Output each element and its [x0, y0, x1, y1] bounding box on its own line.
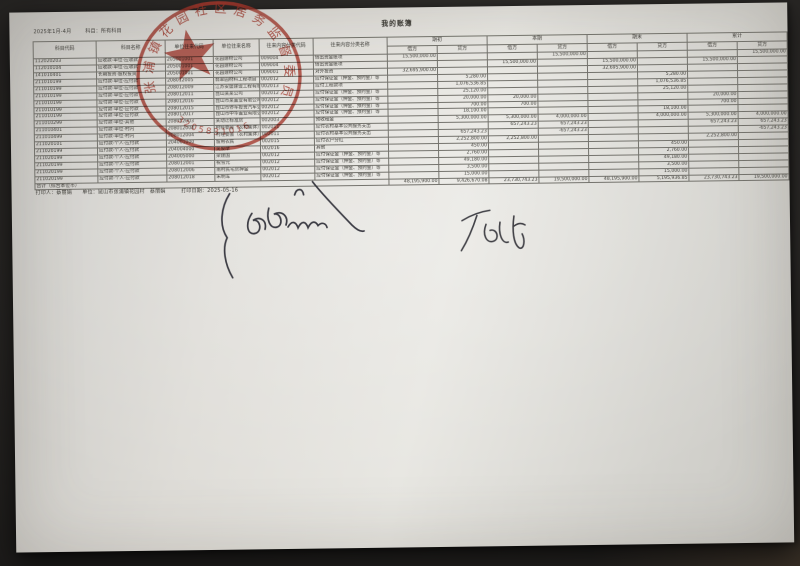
- table-cell: 15,500,000.00: [687, 57, 737, 65]
- table-cell: 32,695,900.00: [587, 65, 637, 73]
- table-cell: 32,695,900.00: [387, 68, 437, 76]
- table-cell: 25,120.00: [438, 88, 488, 96]
- table-cell: 657,243.23: [738, 118, 788, 126]
- table-cell: 657,243.23: [438, 129, 488, 137]
- report-period: 2025年1月-4月: [33, 29, 71, 35]
- table-cell: 2,252,800.00: [488, 135, 538, 143]
- table-cell: -657,243.23: [738, 125, 788, 133]
- table-cell: 20,000.00: [488, 94, 538, 102]
- stamp-serial: 3205831016: [175, 114, 253, 138]
- table-cell: 5,300,000.00: [688, 112, 738, 120]
- table-cell: 18,100.00: [638, 106, 688, 114]
- table-cell: 657,243.23: [688, 119, 738, 127]
- table-cell: 2,252,800.00: [688, 133, 738, 141]
- signature-2: [450, 204, 546, 265]
- table-cell: 4,000,000.00: [638, 113, 688, 121]
- table-cell: 15,000.00: [639, 168, 689, 176]
- table-cell: 15,500,000.00: [537, 52, 587, 60]
- table-cell: 657,243.23: [488, 121, 538, 129]
- table-cell: 4,000,000.00: [538, 114, 588, 122]
- red-official-stamp: 张浦镇花园社区居务监督委员会 3205831016: [115, 0, 317, 167]
- table-cell: 15,500,000.00: [587, 58, 637, 66]
- table-cell: 1,076,536.85: [638, 78, 688, 86]
- table-cell: 5,300,000.00: [488, 115, 538, 123]
- table-cell: 20,000.00: [688, 91, 738, 99]
- print-info-line: 打印人：蔡丽娟 单位：昆山市张浦镇花园村 蔡丽娟 打印日期：2025-05-16: [36, 187, 239, 197]
- table-cell: 4,000,000.00: [738, 111, 788, 119]
- table-cell: 1,076,536.85: [438, 81, 488, 89]
- table-cell: 19,500,000.00: [739, 173, 789, 181]
- table-cell: 19,500,000.00: [539, 176, 589, 184]
- table-cell: 18,100.00: [438, 108, 488, 116]
- table-cell: 48,195,900.00: [589, 175, 639, 183]
- table-cell: 5,300,000.00: [438, 115, 488, 123]
- table-cell: 20,000.00: [438, 94, 488, 102]
- star-icon: [164, 29, 215, 81]
- svg-text:3205831016: 3205831016: [175, 114, 253, 138]
- signature-1: [211, 180, 382, 287]
- paper-sheet: 2025年1月-4月科目：所有科目 我的账簿 科目代码 科目名称 单位往来代码 …: [9, 2, 794, 552]
- table-cell: 15,500,000.00: [387, 54, 437, 62]
- table-cell: 49,180.00: [439, 157, 489, 165]
- table-cell: 15,500,000.00: [737, 49, 787, 57]
- table-cell: 15,000.00: [439, 170, 489, 178]
- table-cell: 15,500,000.00: [487, 59, 537, 67]
- col-header-subject-code: 科目代码: [33, 41, 96, 59]
- table-cell: -657,243.23: [538, 128, 588, 136]
- table-cell: 49,180.00: [639, 154, 689, 162]
- page-title: 我的账簿: [381, 17, 412, 27]
- table-cell: 25,120.00: [638, 85, 688, 93]
- table-cell: 2,252,800.00: [438, 136, 488, 144]
- table-cell: 48,195,900.00: [389, 178, 439, 186]
- table-cell: 657,243.23: [538, 121, 588, 129]
- col-header-content-name: 往来内容分类名称: [313, 37, 387, 55]
- table-cell: 9,426,670.08: [439, 177, 489, 185]
- table-cell: 23,730,743.23: [489, 177, 539, 185]
- table-cell: 5,195,936.85: [639, 175, 689, 183]
- table-cell: 23,730,743.23: [689, 174, 739, 182]
